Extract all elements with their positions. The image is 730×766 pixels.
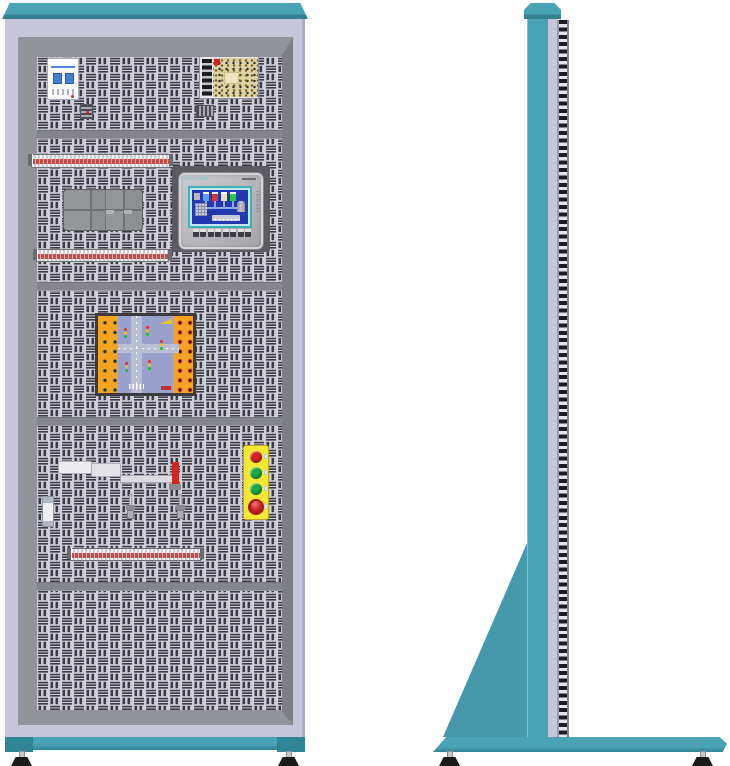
psu-transformer [224,72,239,84]
base-corner-bracket [277,737,305,752]
linear-actuator-body [58,461,92,474]
panel-edge-perforations [557,20,569,737]
red-button [250,451,262,463]
relay-module [42,496,54,527]
hmi-key [215,229,221,237]
screen-tank-red [212,192,218,201]
screen-tank-cream [221,192,227,201]
section-divider [37,130,282,139]
screen-cylinder [237,201,245,212]
foot-stem [447,751,453,758]
corner-wedge [160,318,172,324]
breaker-indicator [71,95,74,98]
foot-stem [19,751,25,758]
crosswalk [129,384,144,389]
traffic-light-icon [125,362,128,365]
breaker-marking [51,66,75,68]
side-frame-strip [548,19,557,737]
road-centerline [118,348,179,349]
strip-end-cap [169,154,173,166]
section-divider [37,282,282,291]
green-button [250,483,262,495]
hmi-key [230,229,236,237]
pushbutton-station [243,445,269,520]
road-centerline [136,316,137,393]
screen-tank-blue [203,192,209,201]
front-top-cap [2,3,308,19]
toggle-switch [175,494,186,519]
section-divider [37,417,282,426]
button-tag [264,504,268,509]
switch-body [177,510,184,519]
din-clip [80,104,93,119]
hmi-model-text [242,178,256,180]
actuator-rail [120,475,173,483]
support-gusset [443,543,527,737]
front-base-rail [5,737,305,750]
screen-tank-green [230,192,236,201]
hmi-key [223,229,229,237]
board-label [161,386,171,390]
side-top-cap [524,3,561,19]
red-handle [172,462,179,485]
button-tag [264,470,268,475]
hmi-key [208,229,214,237]
terminal-strip [31,154,170,168]
hmi-key [245,229,251,237]
psu-terminal-block [202,59,212,96]
hmi-screen [192,190,248,224]
jack-panel-right [173,316,193,393]
side-column [527,19,548,737]
breaker-toggle [65,73,74,84]
hmi-key [193,229,199,237]
plc-port [124,210,132,214]
hmi-key [200,229,206,237]
din-clip [196,105,214,117]
foot-stem [286,751,292,758]
green-button [250,467,262,479]
equipment-illustration: SIEMENS TOUCH [0,0,730,766]
siemens-logo: SIEMENS [184,176,207,181]
button-tag [264,454,268,459]
terminal-strip [70,548,201,561]
traffic-light-icon [124,328,127,331]
hmi-function-keys [193,229,251,237]
leveling-foot [11,757,32,766]
section-divider [37,582,282,591]
jack-panel-left [98,316,118,393]
breaker-toggle [53,73,62,84]
traffic-light-icon [146,326,149,329]
screen-button-row [212,215,240,221]
screen-machine-graphic [195,203,207,216]
foot-stem [700,751,706,758]
toggle-switch [125,494,136,519]
traffic-light-icon [160,340,163,343]
psu-logo [214,59,220,65]
leveling-foot [692,757,713,766]
side-base-beam [433,737,727,752]
circuit-breaker [47,58,79,100]
hmi-key [238,229,244,237]
plc-port [106,210,114,214]
switch-body [127,510,134,519]
emergency-stop-button [248,499,264,515]
strip-end-cap [200,548,204,559]
linear-actuator-head [91,463,121,477]
hmi-touch-label: TOUCH [252,190,261,220]
leveling-foot [278,757,299,766]
terminal-strip [36,249,169,262]
handle-mount [169,484,181,490]
traffic-training-board [95,313,196,396]
button-tag [264,486,268,491]
traffic-light-icon [148,360,151,363]
base-corner-bracket [5,737,33,752]
clip-dot [86,111,89,114]
screen-gray-box [194,193,200,200]
power-supply [199,56,259,99]
leveling-foot [439,757,460,766]
